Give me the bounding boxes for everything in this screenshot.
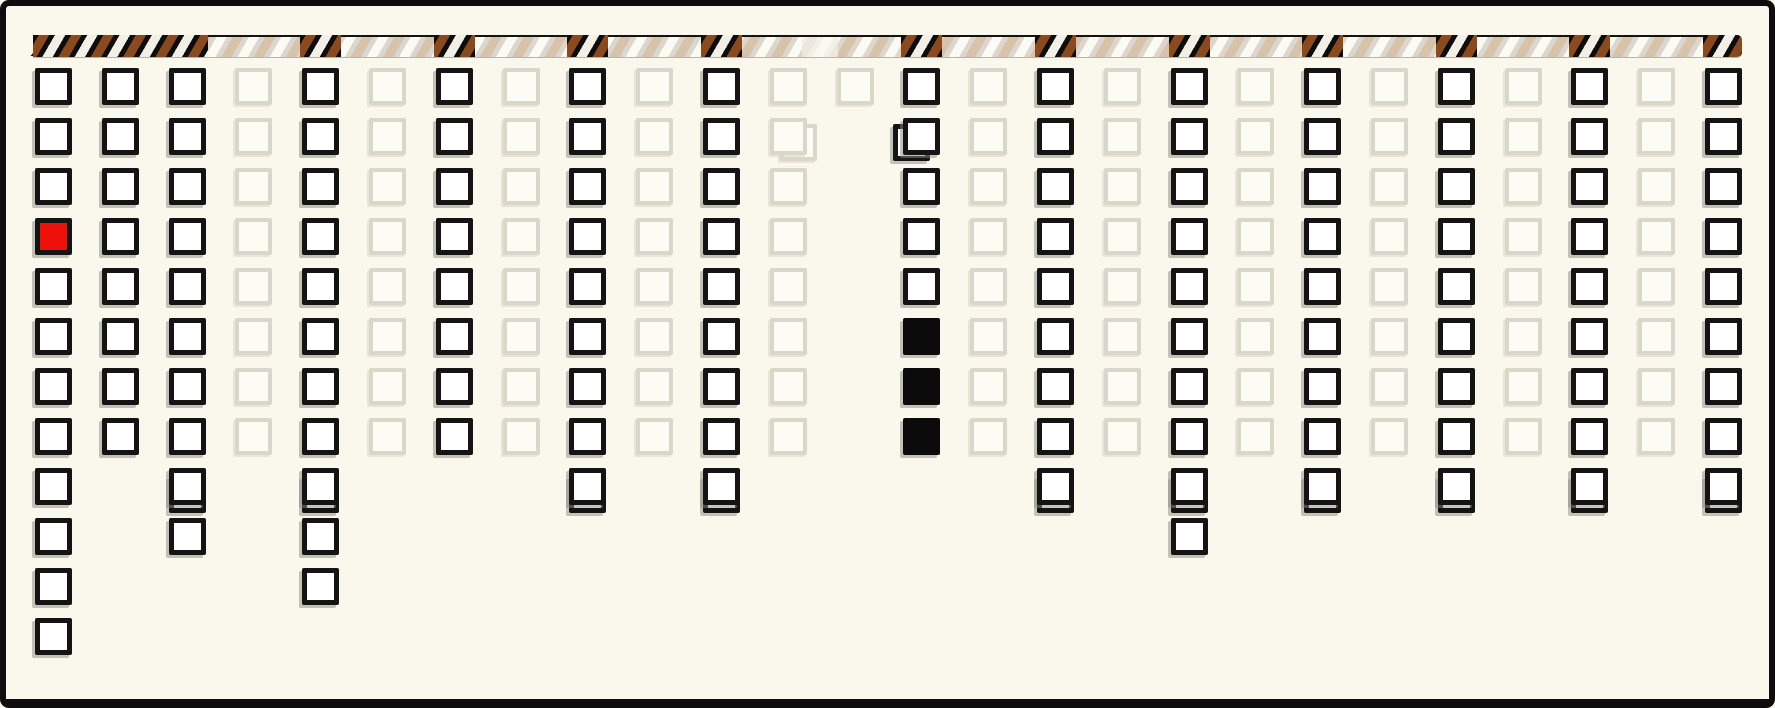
cell-c26-r4[interactable]: [1705, 218, 1742, 255]
cell-c21-r5[interactable]: [1371, 268, 1408, 305]
cell-c16-r5[interactable]: [1037, 268, 1074, 305]
cell-c12-r3[interactable]: [770, 168, 807, 205]
cell-c12-r7[interactable]: [770, 368, 807, 405]
cell-c17-r3[interactable]: [1104, 168, 1141, 205]
cell-c2-r7[interactable]: [102, 368, 139, 405]
cell-c24-r5[interactable]: [1571, 268, 1608, 305]
cell-c24-r4[interactable]: [1571, 218, 1608, 255]
cell-c17-r2[interactable]: [1104, 118, 1141, 155]
cell-c23-r8[interactable]: [1505, 418, 1542, 455]
cell-c22-r2[interactable]: [1438, 118, 1475, 155]
cell-c8-r6[interactable]: [503, 318, 540, 355]
cell-c23-r3[interactable]: [1505, 168, 1542, 205]
bar-hatched-segment: [1035, 35, 1076, 57]
cell-c12-r2[interactable]: [770, 118, 807, 155]
cell-c10-r5[interactable]: [636, 268, 673, 305]
cell-c19-r2[interactable]: [1237, 118, 1274, 155]
cell-c25-r8[interactable]: [1638, 418, 1675, 455]
cell-c26-r9[interactable]: [1705, 468, 1742, 505]
bar-hatched-segment: [300, 35, 341, 57]
cell-c19-r1[interactable]: [1237, 68, 1274, 105]
cell-c4-r1[interactable]: [235, 68, 272, 105]
cell-c6-r7[interactable]: [369, 368, 406, 405]
cell-c18-r1[interactable]: [1171, 68, 1208, 105]
cell-c1-r2[interactable]: [35, 118, 72, 155]
cell-c3-r2[interactable]: [169, 118, 206, 155]
cell-c7-r7[interactable]: [436, 368, 473, 405]
cell-c12-r5[interactable]: [770, 268, 807, 305]
cell-c8-r3[interactable]: [503, 168, 540, 205]
cell-c3-r9[interactable]: [169, 468, 206, 505]
cell-c17-r7[interactable]: [1104, 368, 1141, 405]
cell-c18-r5[interactable]: [1171, 268, 1208, 305]
cell-c25-r6[interactable]: [1638, 318, 1675, 355]
cell-c10-r4[interactable]: [636, 218, 673, 255]
cell-c12-r1[interactable]: [770, 68, 807, 105]
cell-c7-r3[interactable]: [436, 168, 473, 205]
cell-c20-r6[interactable]: [1304, 318, 1341, 355]
cell-c18-r2[interactable]: [1171, 118, 1208, 155]
bar-hatched-segment: [901, 35, 942, 57]
cell-c9-r7[interactable]: [569, 368, 606, 405]
cell-c22-r4[interactable]: [1438, 218, 1475, 255]
cell-c8-r7[interactable]: [503, 368, 540, 405]
black-cell-c14-r8[interactable]: [903, 418, 940, 455]
cell-c19-r7[interactable]: [1237, 368, 1274, 405]
cell-c17-r4[interactable]: [1104, 218, 1141, 255]
cell-c15-r5[interactable]: [970, 268, 1007, 305]
cell-c10-r1[interactable]: [636, 68, 673, 105]
cell-c16-r8[interactable]: [1037, 418, 1074, 455]
cell-c10-r8[interactable]: [636, 418, 673, 455]
cell-c9-r3[interactable]: [569, 168, 606, 205]
cell-c21-r4[interactable]: [1371, 218, 1408, 255]
cell-c9-r9[interactable]: [569, 468, 606, 505]
cell-c22-r1[interactable]: [1438, 68, 1475, 105]
cell-c22-r3[interactable]: [1438, 168, 1475, 205]
cell-c3-r3[interactable]: [169, 168, 206, 205]
cell-c11-r4[interactable]: [703, 218, 740, 255]
cell-c26-r5[interactable]: [1705, 268, 1742, 305]
cell-c1-r11[interactable]: [35, 568, 72, 605]
cell-c5-r10[interactable]: [302, 518, 339, 555]
cell-c4-r4[interactable]: [235, 218, 272, 255]
cell-c21-r1[interactable]: [1371, 68, 1408, 105]
cell-c15-r6[interactable]: [970, 318, 1007, 355]
cell-c18-r6[interactable]: [1171, 318, 1208, 355]
bar-hatched-segment: [1302, 35, 1343, 57]
cell-c8-r2[interactable]: [503, 118, 540, 155]
cell-c21-r2[interactable]: [1371, 118, 1408, 155]
conveyor-bar: [33, 35, 1742, 58]
cell-c4-r5[interactable]: [235, 268, 272, 305]
cell-c17-r5[interactable]: [1104, 268, 1141, 305]
cell-c26-r3[interactable]: [1705, 168, 1742, 205]
cell-c2-r4[interactable]: [102, 218, 139, 255]
bar-hatched-segment: [1169, 35, 1210, 57]
cell-c16-r4[interactable]: [1037, 218, 1074, 255]
cell-c4-r3[interactable]: [235, 168, 272, 205]
cell-c21-r8[interactable]: [1371, 418, 1408, 455]
cell-c6-r1[interactable]: [369, 68, 406, 105]
cell-c1-r7[interactable]: [35, 368, 72, 405]
black-cell-c14-r6[interactable]: [903, 318, 940, 355]
cell-c18-r7[interactable]: [1171, 368, 1208, 405]
cell-c9-r8[interactable]: [569, 418, 606, 455]
cell-c20-r1[interactable]: [1304, 68, 1341, 105]
cell-c23-r2[interactable]: [1505, 118, 1542, 155]
cell-c24-r2[interactable]: [1571, 118, 1608, 155]
cell-c10-r7[interactable]: [636, 368, 673, 405]
cell-c14-r3[interactable]: [903, 168, 940, 205]
cell-c10-r3[interactable]: [636, 168, 673, 205]
cell-c15-r3[interactable]: [970, 168, 1007, 205]
cell-c4-r8[interactable]: [235, 418, 272, 455]
cell-c23-r6[interactable]: [1505, 318, 1542, 355]
cell-c19-r3[interactable]: [1237, 168, 1274, 205]
bar-hatched-segment: [567, 35, 608, 57]
cell-c5-r11[interactable]: [302, 568, 339, 605]
cell-c15-r1[interactable]: [970, 68, 1007, 105]
cell-c8-r1[interactable]: [503, 68, 540, 105]
cell-c15-r2[interactable]: [970, 118, 1007, 155]
cell-c11-r2[interactable]: [703, 118, 740, 155]
cell-c7-r1[interactable]: [436, 68, 473, 105]
cell-c6-r4[interactable]: [369, 218, 406, 255]
cell-c19-r8[interactable]: [1237, 418, 1274, 455]
cell-c23-r5[interactable]: [1505, 268, 1542, 305]
cell-c26-r7[interactable]: [1705, 368, 1742, 405]
cell-c1-r3[interactable]: [35, 168, 72, 205]
cell-c15-r8[interactable]: [970, 418, 1007, 455]
cell-c9-r1[interactable]: [569, 68, 606, 105]
cell-c25-r4[interactable]: [1638, 218, 1675, 255]
cell-c16-r6[interactable]: [1037, 318, 1074, 355]
cell-c6-r6[interactable]: [369, 318, 406, 355]
cell-c25-r5[interactable]: [1638, 268, 1675, 305]
cell-c5-r7[interactable]: [302, 368, 339, 405]
cell-c7-r8[interactable]: [436, 418, 473, 455]
cell-c3-r6[interactable]: [169, 318, 206, 355]
cell-c20-r5[interactable]: [1304, 268, 1341, 305]
cell-c12-r4[interactable]: [770, 218, 807, 255]
cell-c3-r8[interactable]: [169, 418, 206, 455]
cell-c14-r5[interactable]: [903, 268, 940, 305]
cell-c4-r2[interactable]: [235, 118, 272, 155]
cell-c15-r7[interactable]: [970, 368, 1007, 405]
cell-c18-r8[interactable]: [1171, 418, 1208, 455]
bar-hatched-segment: [33, 35, 208, 57]
cell-c5-r6[interactable]: [302, 318, 339, 355]
cell-c22-r8[interactable]: [1438, 418, 1475, 455]
cell-c19-r6[interactable]: [1237, 318, 1274, 355]
cell-c5-r1[interactable]: [302, 68, 339, 105]
cell-c1-r1[interactable]: [35, 68, 72, 105]
cell-c17-r6[interactable]: [1104, 318, 1141, 355]
cell-c12-r8[interactable]: [770, 418, 807, 455]
cell-c6-r5[interactable]: [369, 268, 406, 305]
cell-c2-r8[interactable]: [102, 418, 139, 455]
cell-c18-r10[interactable]: [1171, 518, 1208, 555]
cell-c1-r9[interactable]: [35, 468, 72, 505]
cell-c4-r6[interactable]: [235, 318, 272, 355]
cell-c11-r8[interactable]: [703, 418, 740, 455]
cell-c9-r2[interactable]: [569, 118, 606, 155]
cell-c20-r7[interactable]: [1304, 368, 1341, 405]
cell-c11-r1[interactable]: [703, 68, 740, 105]
cell-c24-r9[interactable]: [1571, 468, 1608, 505]
cell-c17-r8[interactable]: [1104, 418, 1141, 455]
cell-c26-r1[interactable]: [1705, 68, 1742, 105]
cell-c10-r6[interactable]: [636, 318, 673, 355]
cell-c5-r9[interactable]: [302, 468, 339, 505]
cell-c16-r1[interactable]: [1037, 68, 1074, 105]
cell-c25-r1[interactable]: [1638, 68, 1675, 105]
cell-c1-r8[interactable]: [35, 418, 72, 455]
cell-c11-r7[interactable]: [703, 368, 740, 405]
cell-c1-r10[interactable]: [35, 518, 72, 555]
red-cell-c1-r4[interactable]: [35, 218, 72, 255]
bar-hatched-segment: [701, 35, 742, 57]
cell-c24-r6[interactable]: [1571, 318, 1608, 355]
cell-c3-r4[interactable]: [169, 218, 206, 255]
cell-c11-r5[interactable]: [703, 268, 740, 305]
cell-c26-r2[interactable]: [1705, 118, 1742, 155]
cell-c11-r9[interactable]: [703, 468, 740, 505]
cell-c6-r2[interactable]: [369, 118, 406, 155]
cell-c25-r3[interactable]: [1638, 168, 1675, 205]
black-cell-c14-r7[interactable]: [903, 368, 940, 405]
cell-c9-r5[interactable]: [569, 268, 606, 305]
cell-c16-r2[interactable]: [1037, 118, 1074, 155]
cell-c16-r3[interactable]: [1037, 168, 1074, 205]
cell-c19-r5[interactable]: [1237, 268, 1274, 305]
cell-c21-r3[interactable]: [1371, 168, 1408, 205]
cell-c1-r5[interactable]: [35, 268, 72, 305]
cell-c21-r7[interactable]: [1371, 368, 1408, 405]
cell-c26-r6[interactable]: [1705, 318, 1742, 355]
cell-c23-r7[interactable]: [1505, 368, 1542, 405]
cell-c20-r3[interactable]: [1304, 168, 1341, 205]
cell-c7-r4[interactable]: [436, 218, 473, 255]
cell-c22-r9[interactable]: [1438, 468, 1475, 505]
cell-c25-r2[interactable]: [1638, 118, 1675, 155]
cell-c15-r4[interactable]: [970, 218, 1007, 255]
cell-c6-r8[interactable]: [369, 418, 406, 455]
cell-c2-r3[interactable]: [102, 168, 139, 205]
cell-c3-r7[interactable]: [169, 368, 206, 405]
cell-c3-r5[interactable]: [169, 268, 206, 305]
cell-c16-r7[interactable]: [1037, 368, 1074, 405]
cell-c13-r1[interactable]: [837, 68, 874, 105]
cell-c23-r4[interactable]: [1505, 218, 1542, 255]
cell-c11-r3[interactable]: [703, 168, 740, 205]
cell-c18-r3[interactable]: [1171, 168, 1208, 205]
bar-blank-segment: [802, 37, 838, 57]
cell-c9-r4[interactable]: [569, 218, 606, 255]
cell-c2-r6[interactable]: [102, 318, 139, 355]
cell-c5-r2[interactable]: [302, 118, 339, 155]
cell-c8-r5[interactable]: [503, 268, 540, 305]
bar-hatched-segment: [1436, 35, 1477, 57]
cell-c8-r4[interactable]: [503, 218, 540, 255]
cell-c9-r6[interactable]: [569, 318, 606, 355]
cell-c2-r2[interactable]: [102, 118, 139, 155]
cell-c14-r4[interactable]: [903, 218, 940, 255]
cell-c25-r7[interactable]: [1638, 368, 1675, 405]
cell-c3-r1[interactable]: [169, 68, 206, 105]
cell-c10-r2[interactable]: [636, 118, 673, 155]
cell-c24-r3[interactable]: [1571, 168, 1608, 205]
cell-c24-r1[interactable]: [1571, 68, 1608, 105]
cell-c22-r5[interactable]: [1438, 268, 1475, 305]
game-screen: [0, 0, 1775, 708]
cell-c6-r3[interactable]: [369, 168, 406, 205]
cell-c5-r8[interactable]: [302, 418, 339, 455]
cell-c20-r9[interactable]: [1304, 468, 1341, 505]
bar-hatched-segment: [1703, 35, 1742, 57]
cell-c19-r4[interactable]: [1237, 218, 1274, 255]
cell-c1-r12[interactable]: [35, 618, 72, 655]
cell-c26-r8[interactable]: [1705, 418, 1742, 455]
cell-c22-r7[interactable]: [1438, 368, 1475, 405]
cell-c18-r4[interactable]: [1171, 218, 1208, 255]
bar-hatched-segment: [434, 35, 475, 57]
cell-c11-r6[interactable]: [703, 318, 740, 355]
cell-c4-r7[interactable]: [235, 368, 272, 405]
cell-c16-r9[interactable]: [1037, 468, 1074, 505]
cell-c18-r9[interactable]: [1171, 468, 1208, 505]
cell-c5-r5[interactable]: [302, 268, 339, 305]
cell-c7-r2[interactable]: [436, 118, 473, 155]
cell-c21-r6[interactable]: [1371, 318, 1408, 355]
cell-c12-r6[interactable]: [770, 318, 807, 355]
cell-c14-r1[interactable]: [903, 68, 940, 105]
cell-c20-r2[interactable]: [1304, 118, 1341, 155]
cell-c24-r7[interactable]: [1571, 368, 1608, 405]
cell-c20-r4[interactable]: [1304, 218, 1341, 255]
cell-c5-r4[interactable]: [302, 218, 339, 255]
cell-c14-r2[interactable]: [903, 118, 940, 155]
cell-c24-r8[interactable]: [1571, 418, 1608, 455]
cell-c22-r6[interactable]: [1438, 318, 1475, 355]
cell-c1-r6[interactable]: [35, 318, 72, 355]
cell-c8-r8[interactable]: [503, 418, 540, 455]
cell-c23-r1[interactable]: [1505, 68, 1542, 105]
cell-c20-r8[interactable]: [1304, 418, 1341, 455]
cell-c2-r1[interactable]: [102, 68, 139, 105]
cell-c3-r10[interactable]: [169, 518, 206, 555]
cell-c5-r3[interactable]: [302, 168, 339, 205]
cell-c2-r5[interactable]: [102, 268, 139, 305]
cell-c17-r1[interactable]: [1104, 68, 1141, 105]
cell-c7-r5[interactable]: [436, 268, 473, 305]
cell-c7-r6[interactable]: [436, 318, 473, 355]
bar-hatched-segment: [1569, 35, 1610, 57]
